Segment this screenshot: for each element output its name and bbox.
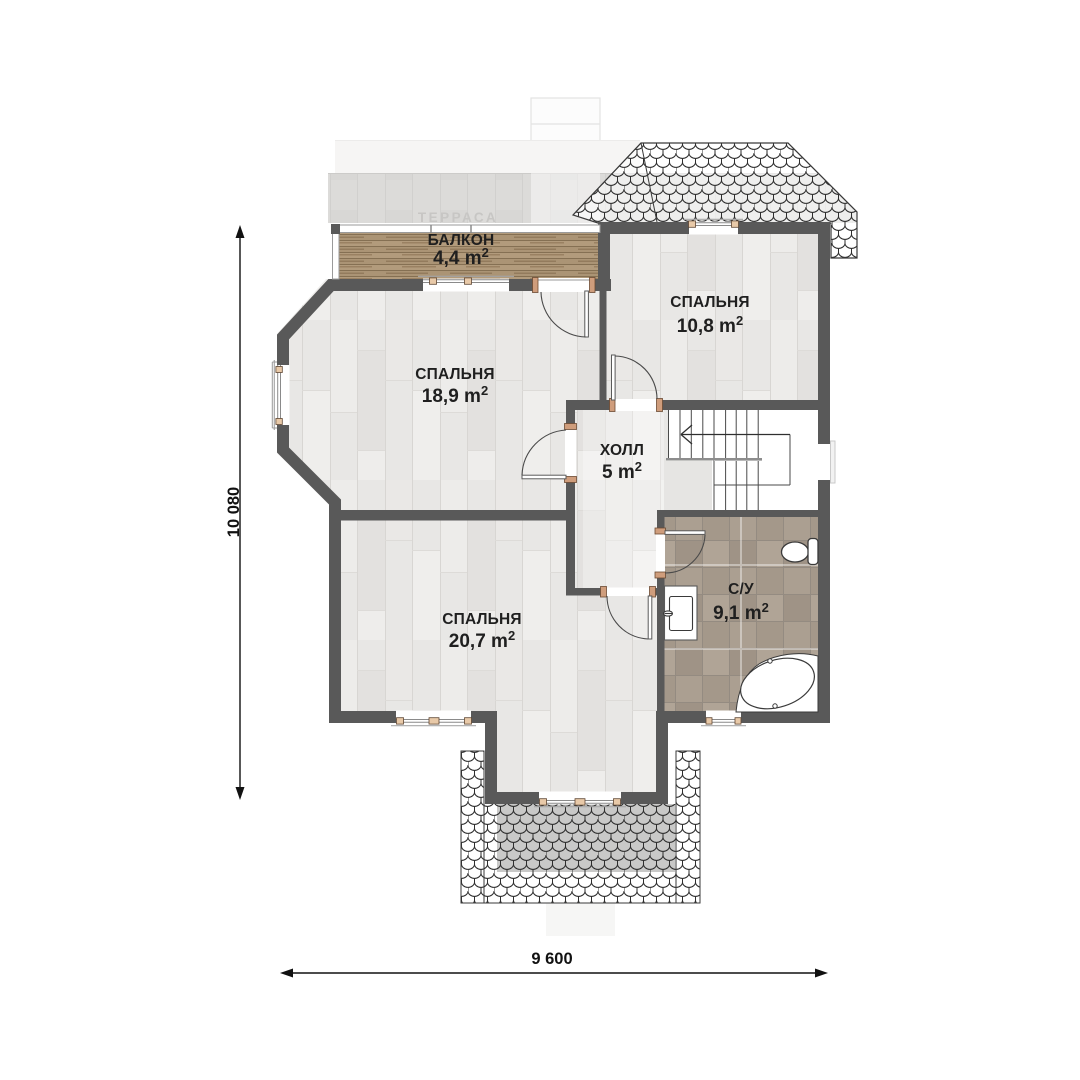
svg-text:9 600: 9 600 xyxy=(531,950,572,968)
svg-text:10 080: 10 080 xyxy=(225,487,243,537)
svg-text:9,1 m2: 9,1 m2 xyxy=(713,600,769,624)
svg-text:20,7 m2: 20,7 m2 xyxy=(449,628,515,652)
svg-text:С/У: С/У xyxy=(728,581,754,598)
svg-text:4,4 m2: 4,4 m2 xyxy=(433,245,489,269)
svg-text:СПАЛЬНЯ: СПАЛЬНЯ xyxy=(442,611,521,628)
svg-text:ТЕРРАСА: ТЕРРАСА xyxy=(418,210,498,225)
svg-text:ХОЛЛ: ХОЛЛ xyxy=(600,442,644,459)
svg-text:СПАЛЬНЯ: СПАЛЬНЯ xyxy=(670,294,749,311)
svg-text:10,8 m2: 10,8 m2 xyxy=(677,313,743,337)
svg-text:18,9 m2: 18,9 m2 xyxy=(422,383,488,407)
svg-text:СПАЛЬНЯ: СПАЛЬНЯ xyxy=(415,366,494,383)
